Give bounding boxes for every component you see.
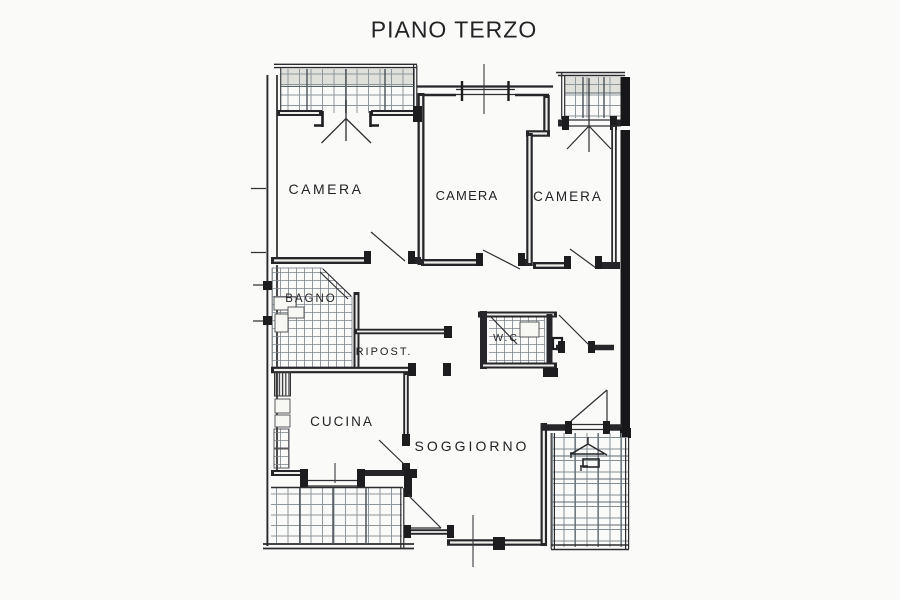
svg-text:PIANO TERZO: PIANO TERZO bbox=[371, 17, 538, 43]
svg-text:RIPOST.: RIPOST. bbox=[356, 346, 413, 358]
svg-text:CAMERA: CAMERA bbox=[436, 188, 499, 203]
svg-text:W.C: W.C bbox=[493, 332, 519, 344]
svg-text:SOGGIORNO: SOGGIORNO bbox=[415, 438, 530, 454]
svg-text:CAMERA: CAMERA bbox=[289, 181, 364, 197]
svg-text:CAMERA: CAMERA bbox=[533, 189, 603, 204]
svg-text:BAGNO: BAGNO bbox=[285, 293, 337, 305]
svg-text:CUCINA: CUCINA bbox=[310, 414, 374, 429]
